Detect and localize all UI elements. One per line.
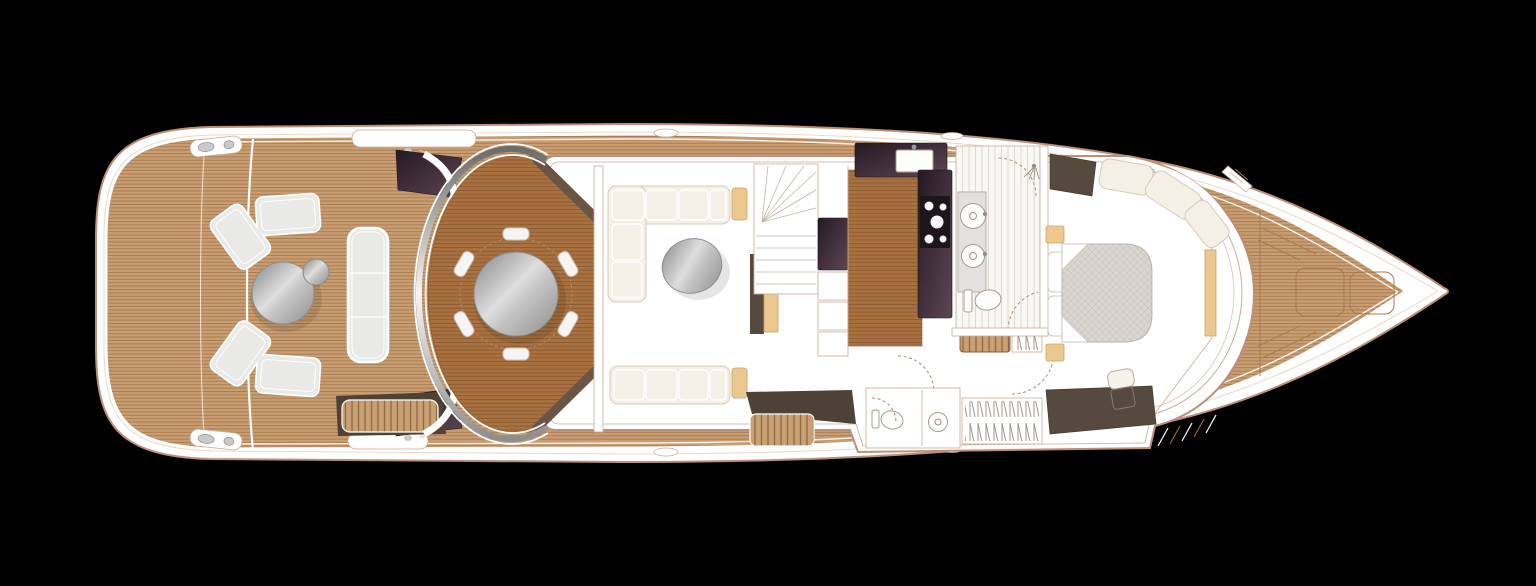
sofa-starboard: [610, 366, 730, 404]
mattress: [1062, 244, 1152, 342]
basin-1: [961, 204, 986, 229]
aft-bench-seat: [348, 228, 388, 362]
galley-tap: [912, 145, 917, 150]
saloon-aft-wall: [594, 166, 603, 432]
end-table-aft-port: [732, 188, 747, 220]
locker-3: [818, 332, 848, 356]
hob-5-burner: [920, 196, 950, 248]
alfresco-dining: [415, 144, 600, 444]
deck-fitting-starboard: [404, 435, 412, 441]
bedside-table-starboard: [1046, 344, 1064, 361]
locker-2: [818, 302, 848, 330]
basin-2: [962, 245, 985, 268]
galley: [848, 143, 952, 346]
bedside-table-port: [1046, 226, 1064, 243]
wardrobe-fwd: [1205, 250, 1216, 336]
basin-1-tap: [983, 212, 987, 216]
wardrobe-lower: [962, 398, 1042, 444]
midship-cleat-port-1: [654, 129, 678, 137]
basin-2-tap: [983, 252, 987, 256]
day-head: [866, 388, 960, 448]
locker-1: [818, 272, 848, 300]
basin-day-head: [929, 413, 948, 432]
deck-plan-canvas: Yacht main deck floor plan, top-down vie…: [0, 0, 1536, 586]
tall-cabinet: [818, 218, 848, 270]
galley-sink: [896, 150, 933, 172]
end-table-fwd-starboard: [732, 368, 747, 398]
staircase-up: [754, 164, 818, 294]
aft-stool: [303, 259, 329, 285]
double-bed: [1046, 226, 1152, 361]
midship-cleat-starboard-1: [654, 448, 678, 456]
midship-cleat-port-2: [941, 133, 963, 140]
dining-table: [474, 252, 558, 336]
shower-room-wall-aft: [952, 328, 1048, 336]
boarding-pad-port: [352, 130, 476, 147]
shower-room: [956, 146, 1040, 330]
galley-sole: [848, 170, 922, 346]
